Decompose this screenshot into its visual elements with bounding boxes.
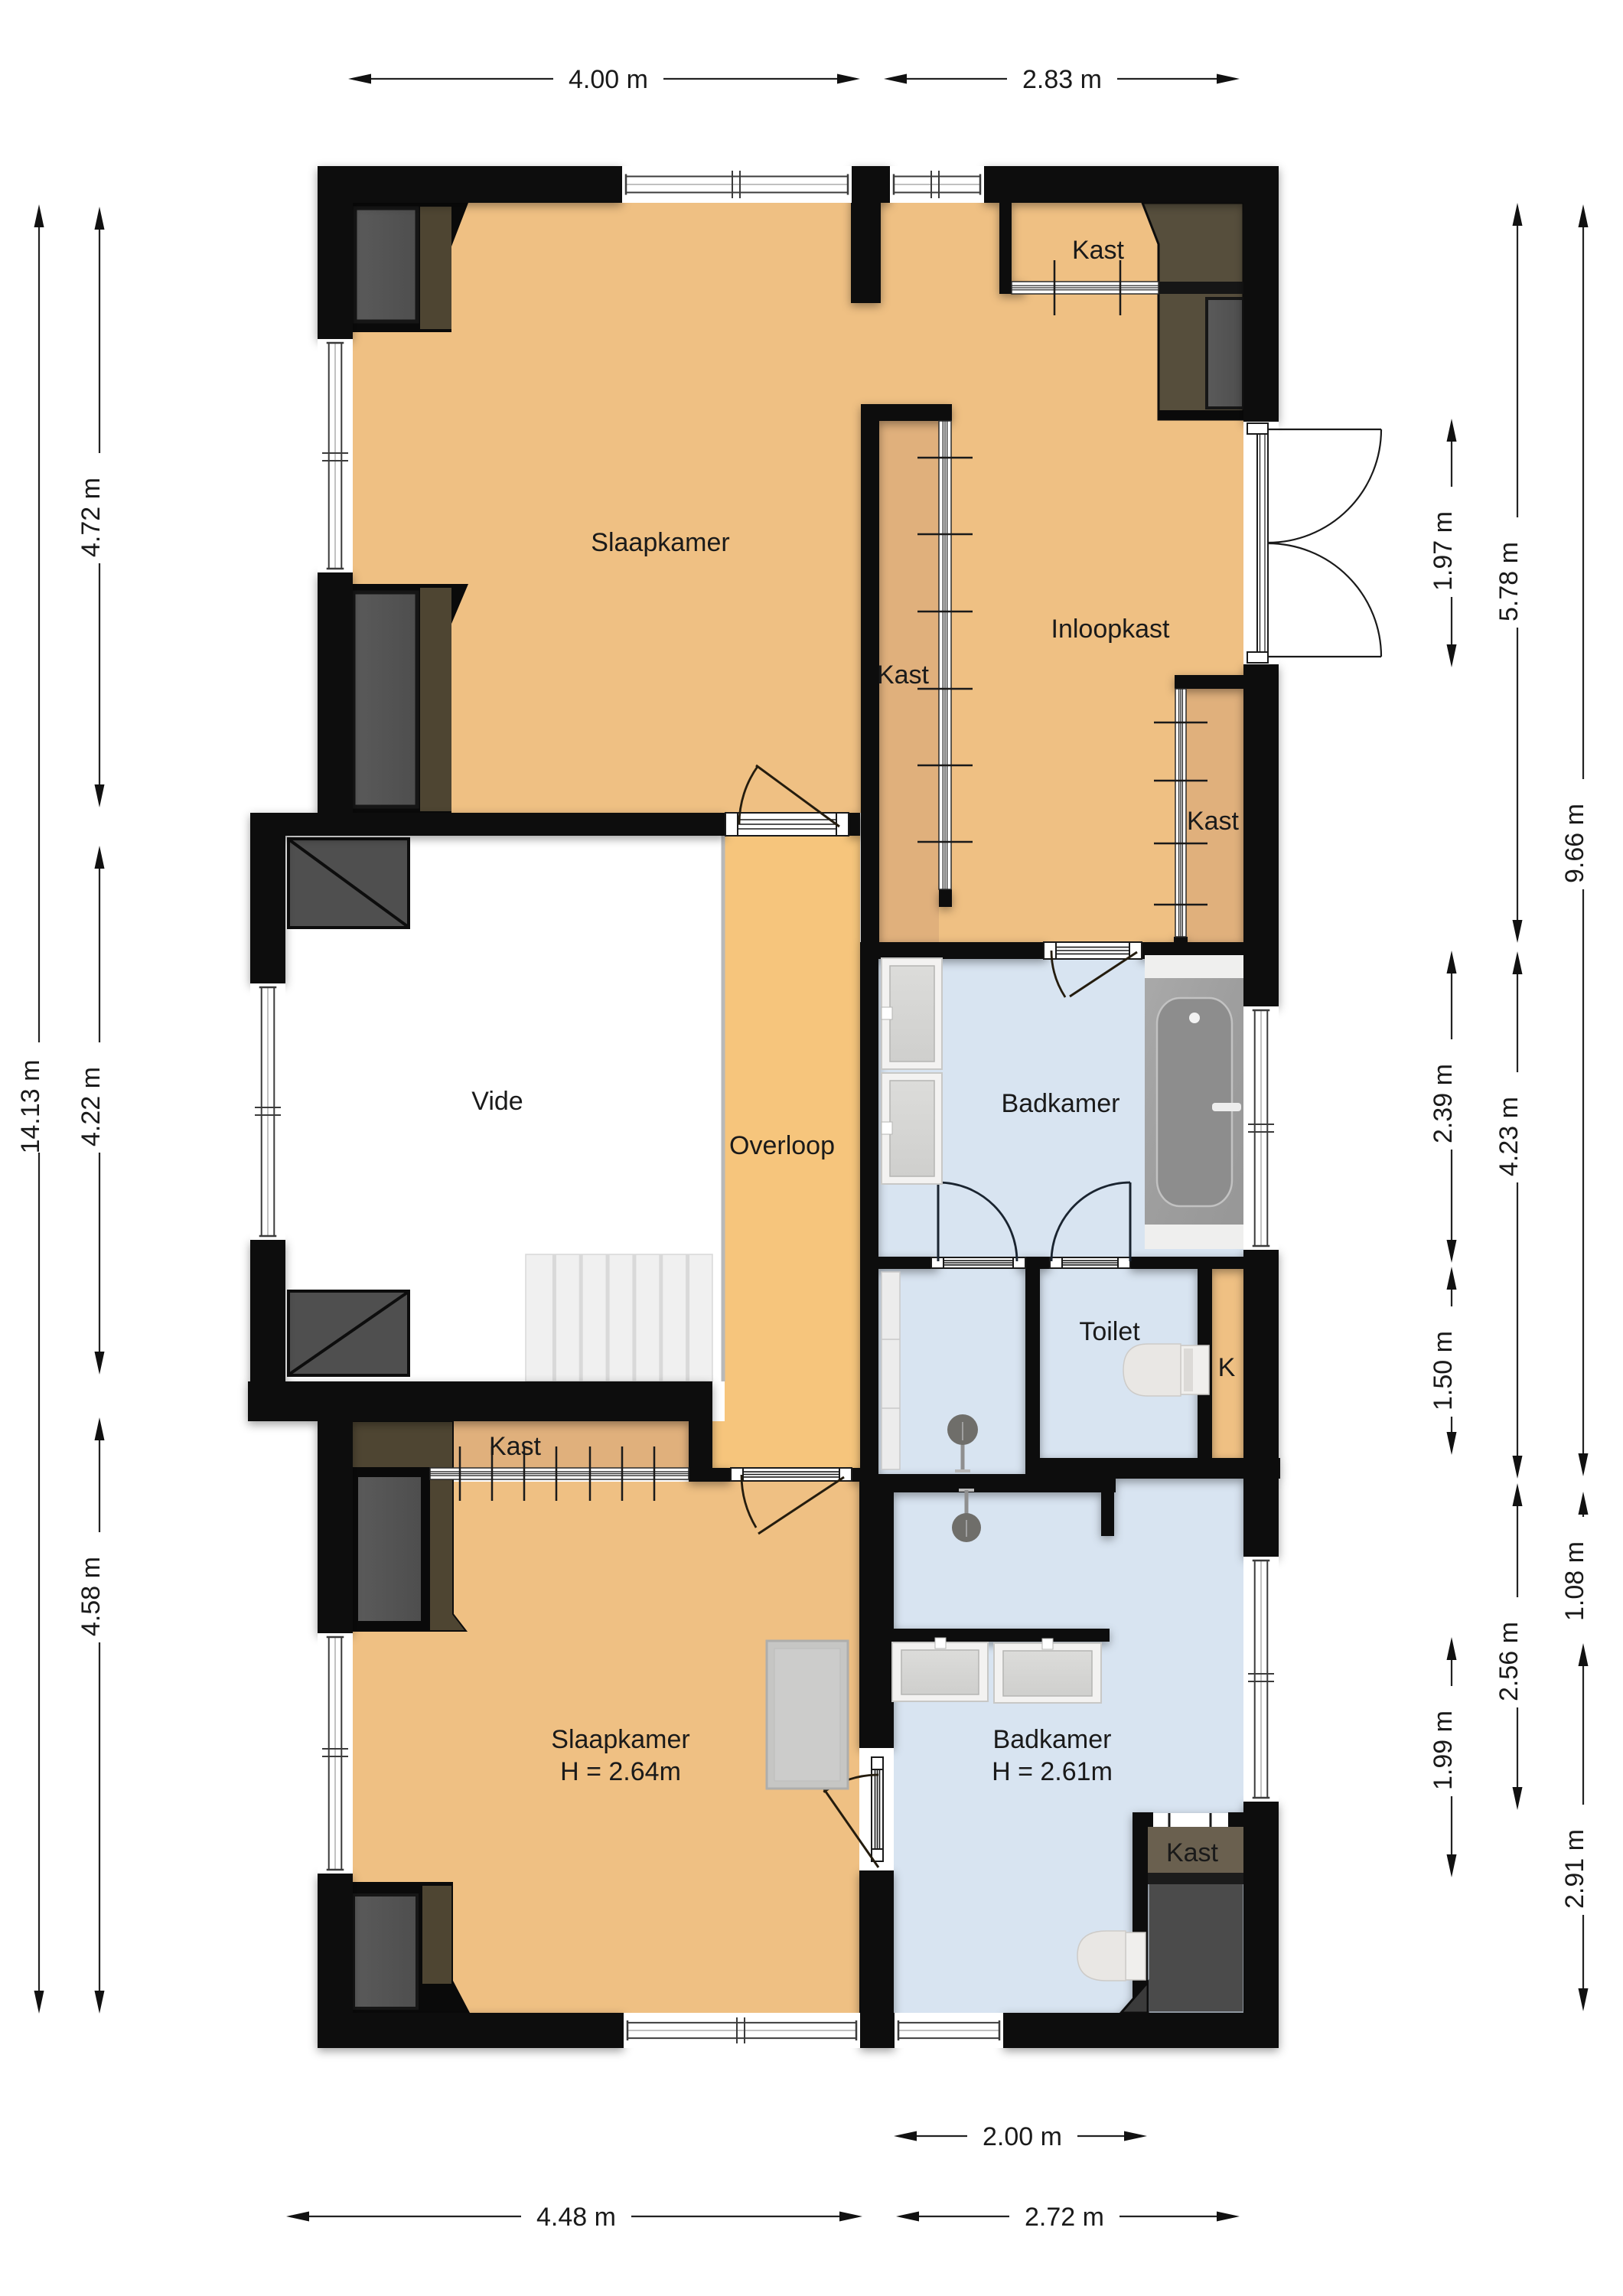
svg-text:2.39 m: 2.39 m — [1429, 1064, 1458, 1143]
svg-text:5.78 m: 5.78 m — [1494, 542, 1524, 621]
svg-text:4.00 m: 4.00 m — [569, 65, 648, 94]
svg-text:1.97 m: 1.97 m — [1429, 511, 1458, 591]
svg-text:Slaapkamer: Slaapkamer — [591, 528, 729, 557]
svg-text:1.50 m: 1.50 m — [1429, 1331, 1458, 1411]
svg-text:Kast: Kast — [877, 660, 930, 690]
svg-text:H = 2.64m: H = 2.64m — [560, 1757, 681, 1786]
svg-text:H = 2.61m: H = 2.61m — [992, 1757, 1113, 1786]
svg-text:Kast: Kast — [1187, 807, 1240, 836]
svg-text:2.91 m: 2.91 m — [1560, 1829, 1589, 1909]
svg-text:2.56 m: 2.56 m — [1494, 1622, 1524, 1701]
svg-text:2.00 m: 2.00 m — [983, 2122, 1062, 2151]
svg-text:Vide: Vide — [471, 1087, 523, 1116]
svg-text:4.23 m: 4.23 m — [1494, 1097, 1524, 1176]
svg-text:4.22 m: 4.22 m — [77, 1067, 106, 1146]
svg-text:Kast: Kast — [489, 1432, 542, 1461]
svg-text:K: K — [1218, 1353, 1236, 1382]
svg-text:9.66 m: 9.66 m — [1560, 804, 1589, 883]
svg-text:Kast: Kast — [1072, 236, 1125, 265]
svg-text:14.13 m: 14.13 m — [16, 1060, 45, 1154]
svg-text:1.99 m: 1.99 m — [1429, 1711, 1458, 1790]
svg-text:4.48 m: 4.48 m — [536, 2203, 616, 2232]
svg-text:Kast: Kast — [1166, 1838, 1219, 1867]
svg-text:Slaapkamer: Slaapkamer — [551, 1725, 689, 1754]
svg-text:1.08 m: 1.08 m — [1560, 1541, 1589, 1621]
svg-text:4.58 m: 4.58 m — [77, 1557, 106, 1636]
svg-text:Toilet: Toilet — [1079, 1317, 1140, 1346]
svg-text:2.72 m: 2.72 m — [1025, 2203, 1104, 2232]
svg-text:4.72 m: 4.72 m — [77, 478, 106, 557]
svg-text:2.83 m: 2.83 m — [1022, 65, 1102, 94]
svg-text:Overloop: Overloop — [729, 1131, 835, 1160]
svg-text:Badkamer: Badkamer — [1002, 1089, 1120, 1118]
svg-text:Badkamer: Badkamer — [993, 1725, 1112, 1754]
svg-text:Inloopkast: Inloopkast — [1051, 615, 1171, 644]
